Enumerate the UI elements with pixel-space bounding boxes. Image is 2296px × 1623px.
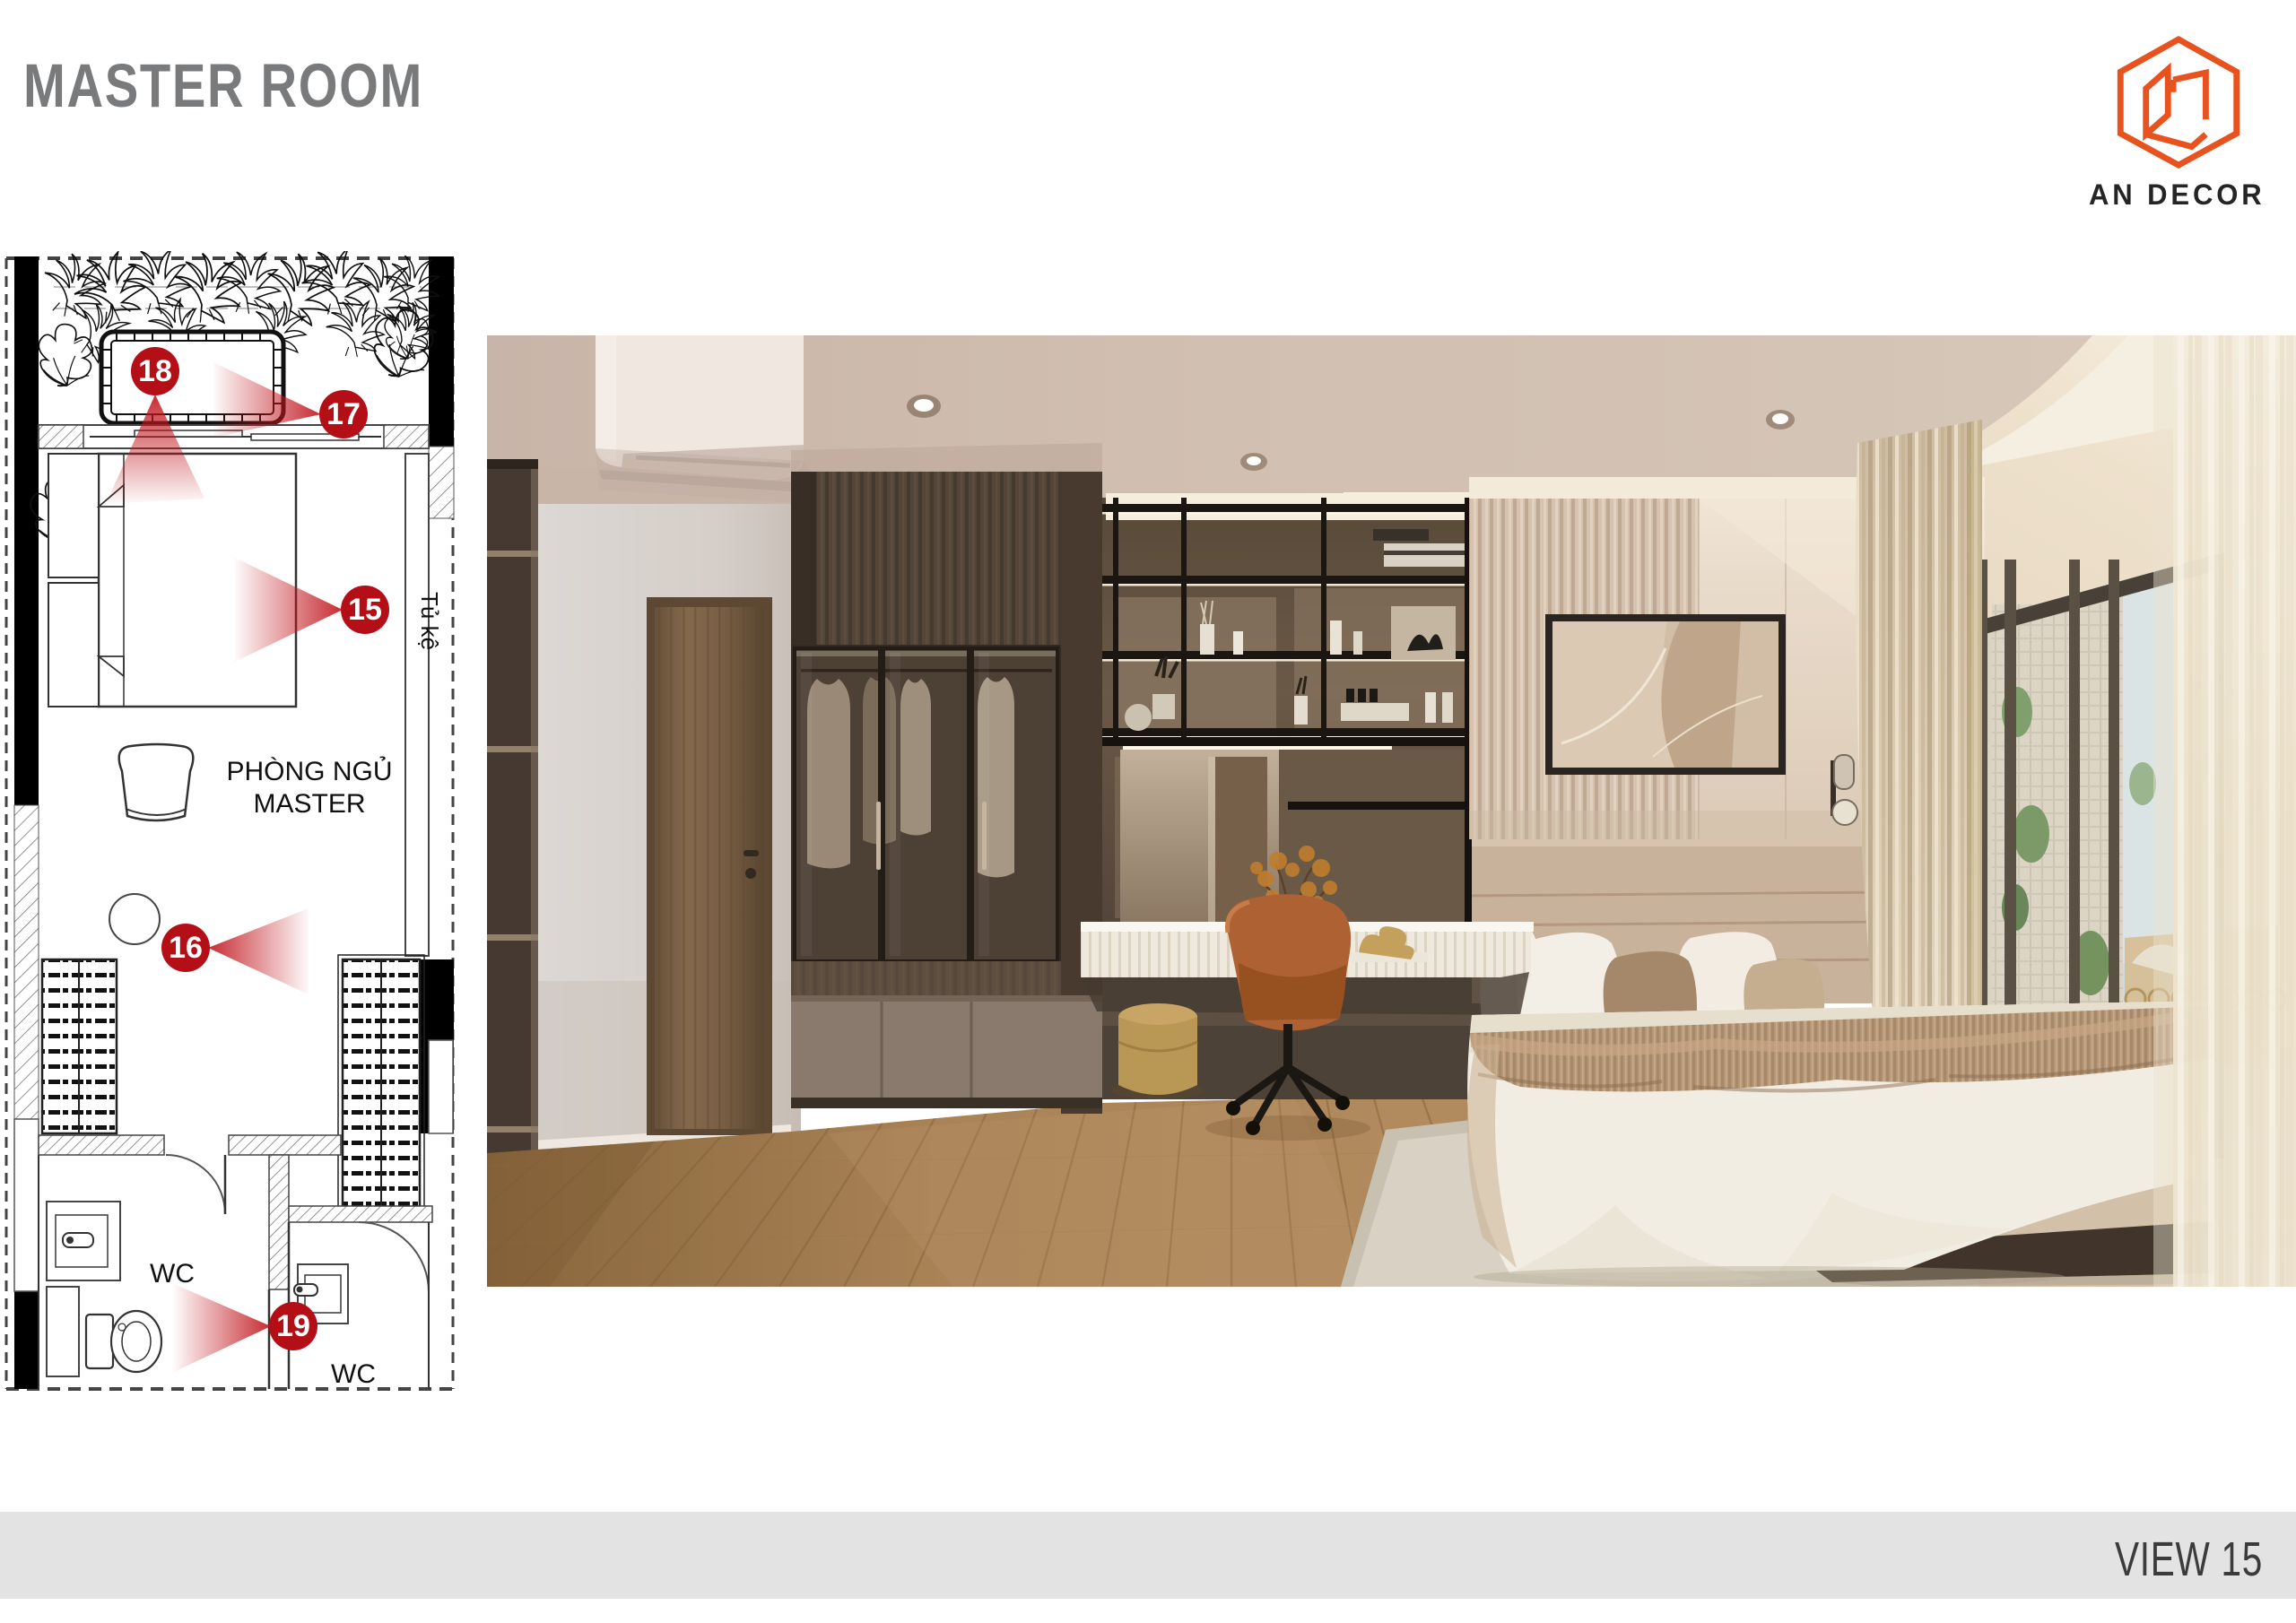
svg-text:WC: WC (150, 1259, 195, 1289)
svg-text:18: 18 (138, 354, 172, 388)
svg-text:16: 16 (169, 931, 203, 965)
svg-text:MASTER: MASTER (253, 789, 365, 819)
svg-text:17: 17 (326, 397, 361, 431)
svg-text:WC: WC (331, 1359, 376, 1389)
svg-text:PHÒNG NGỦ: PHÒNG NGỦ (226, 756, 392, 786)
svg-text:15: 15 (348, 593, 382, 627)
svg-text:19: 19 (276, 1309, 310, 1343)
svg-text:Tủ kệ: Tủ kệ (416, 592, 443, 650)
